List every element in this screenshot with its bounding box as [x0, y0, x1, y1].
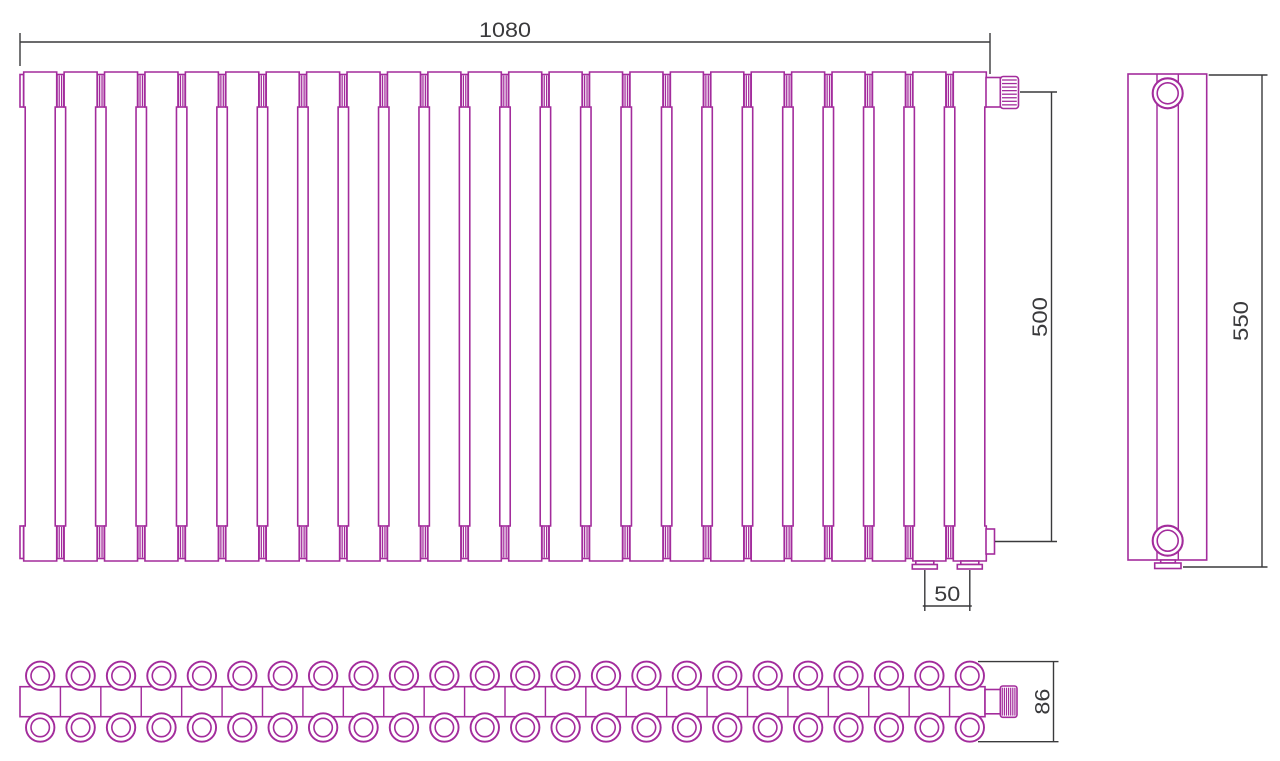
rear-tube-sliver: [178, 75, 185, 108]
front-view: [20, 72, 1019, 569]
valve-neck: [985, 690, 1000, 714]
rear-tube-sliver: [785, 75, 792, 108]
rear-tube-sliver: [744, 75, 751, 108]
rear-tube-sliver: [421, 75, 428, 108]
dim-width-label: 1080: [479, 19, 531, 42]
rear-tube-sliver: [663, 526, 670, 559]
rear-tube-sliver: [906, 526, 913, 559]
tube-column: [590, 72, 623, 561]
rear-tube-sliver: [97, 75, 104, 108]
collector-band: [20, 687, 985, 717]
rear-tube-sliver: [97, 526, 104, 559]
side-view: [1128, 74, 1207, 569]
dim-depth-label: 86: [1032, 689, 1055, 715]
rear-tube-sliver: [380, 75, 387, 108]
rear-tube-sliver: [138, 75, 145, 108]
rear-tube-sliver: [502, 526, 509, 559]
rear-tube-sliver: [300, 526, 307, 559]
rear-tube-sliver: [825, 75, 832, 108]
top-view: [20, 662, 1017, 742]
tube-column: [832, 72, 865, 561]
rear-tube-sliver: [906, 75, 913, 108]
side-stub-flange: [1155, 563, 1181, 569]
rear-tube-sliver: [380, 526, 387, 559]
rear-tube-sliver: [259, 75, 266, 108]
rear-tube-sliver: [542, 75, 549, 108]
connection-stub-flange: [912, 565, 937, 570]
rear-tube-sliver: [623, 75, 630, 108]
tube-column: [307, 72, 340, 561]
tube-column: [630, 72, 663, 561]
dim-overall-height-label: 550: [1230, 301, 1253, 341]
rear-tube-sliver: [219, 526, 226, 559]
side-connection-tab: [986, 529, 995, 554]
rear-tube-sliver: [704, 75, 711, 108]
rear-tube-sliver: [178, 526, 185, 559]
rear-tube-sliver: [582, 526, 589, 559]
rear-tube-sliver: [623, 526, 630, 559]
tube-column: [670, 72, 703, 561]
connection-stub-flange: [957, 565, 982, 570]
rear-tube-sliver: [340, 526, 347, 559]
tube-column: [64, 72, 97, 561]
tube-column: [347, 72, 380, 561]
tube-column: [185, 72, 218, 561]
tube-column: [711, 72, 744, 561]
rear-tube-sliver: [340, 75, 347, 108]
rear-tube-sliver: [865, 526, 872, 559]
rear-tube-sliver: [582, 75, 589, 108]
rear-tube-sliver: [138, 526, 145, 559]
tube-column: [953, 72, 986, 561]
tube-column: [428, 72, 461, 561]
tube-column: [872, 72, 905, 561]
rear-tube-sliver: [57, 75, 64, 108]
rear-tube-sliver: [300, 75, 307, 108]
rear-tube-sliver: [744, 526, 751, 559]
rear-tube-sliver: [865, 75, 872, 108]
dim-tapping-spacing-label: 50: [934, 583, 960, 606]
rear-tube-sliver: [219, 75, 226, 108]
tube-column: [387, 72, 420, 561]
valve-neck: [986, 78, 1000, 108]
rear-tube-sliver: [461, 526, 468, 559]
valve-cap: [1000, 77, 1018, 109]
tube-column: [145, 72, 178, 561]
rear-tube-sliver: [542, 526, 549, 559]
rear-tube-sliver: [704, 526, 711, 559]
dim-connection-height-label: 500: [1029, 297, 1052, 337]
rear-tube-sliver: [421, 526, 428, 559]
tube-column: [468, 72, 501, 561]
tube-column: [792, 72, 825, 561]
rear-tube-sliver: [663, 75, 670, 108]
tube-column: [226, 72, 259, 561]
rear-tube-sliver: [946, 526, 953, 559]
rear-tube-sliver: [259, 526, 266, 559]
tube-column: [266, 72, 299, 561]
tube-column: [105, 72, 138, 561]
rear-tube-sliver: [57, 526, 64, 559]
rear-tube-sliver: [946, 75, 953, 108]
tube-column: [913, 72, 946, 561]
side-body: [1128, 74, 1207, 560]
rear-tube-sliver: [502, 75, 509, 108]
tube-column: [751, 72, 784, 561]
drawing-canvas: 10805005055086: [0, 0, 1280, 761]
radiator-technical-drawing: 10805005055086: [0, 0, 1280, 761]
rear-tube-sliver: [785, 526, 792, 559]
rear-tube-sliver: [825, 526, 832, 559]
tube-column: [24, 72, 57, 561]
tube-column: [549, 72, 582, 561]
tube-column: [509, 72, 542, 561]
rear-tube-sliver: [461, 75, 468, 108]
